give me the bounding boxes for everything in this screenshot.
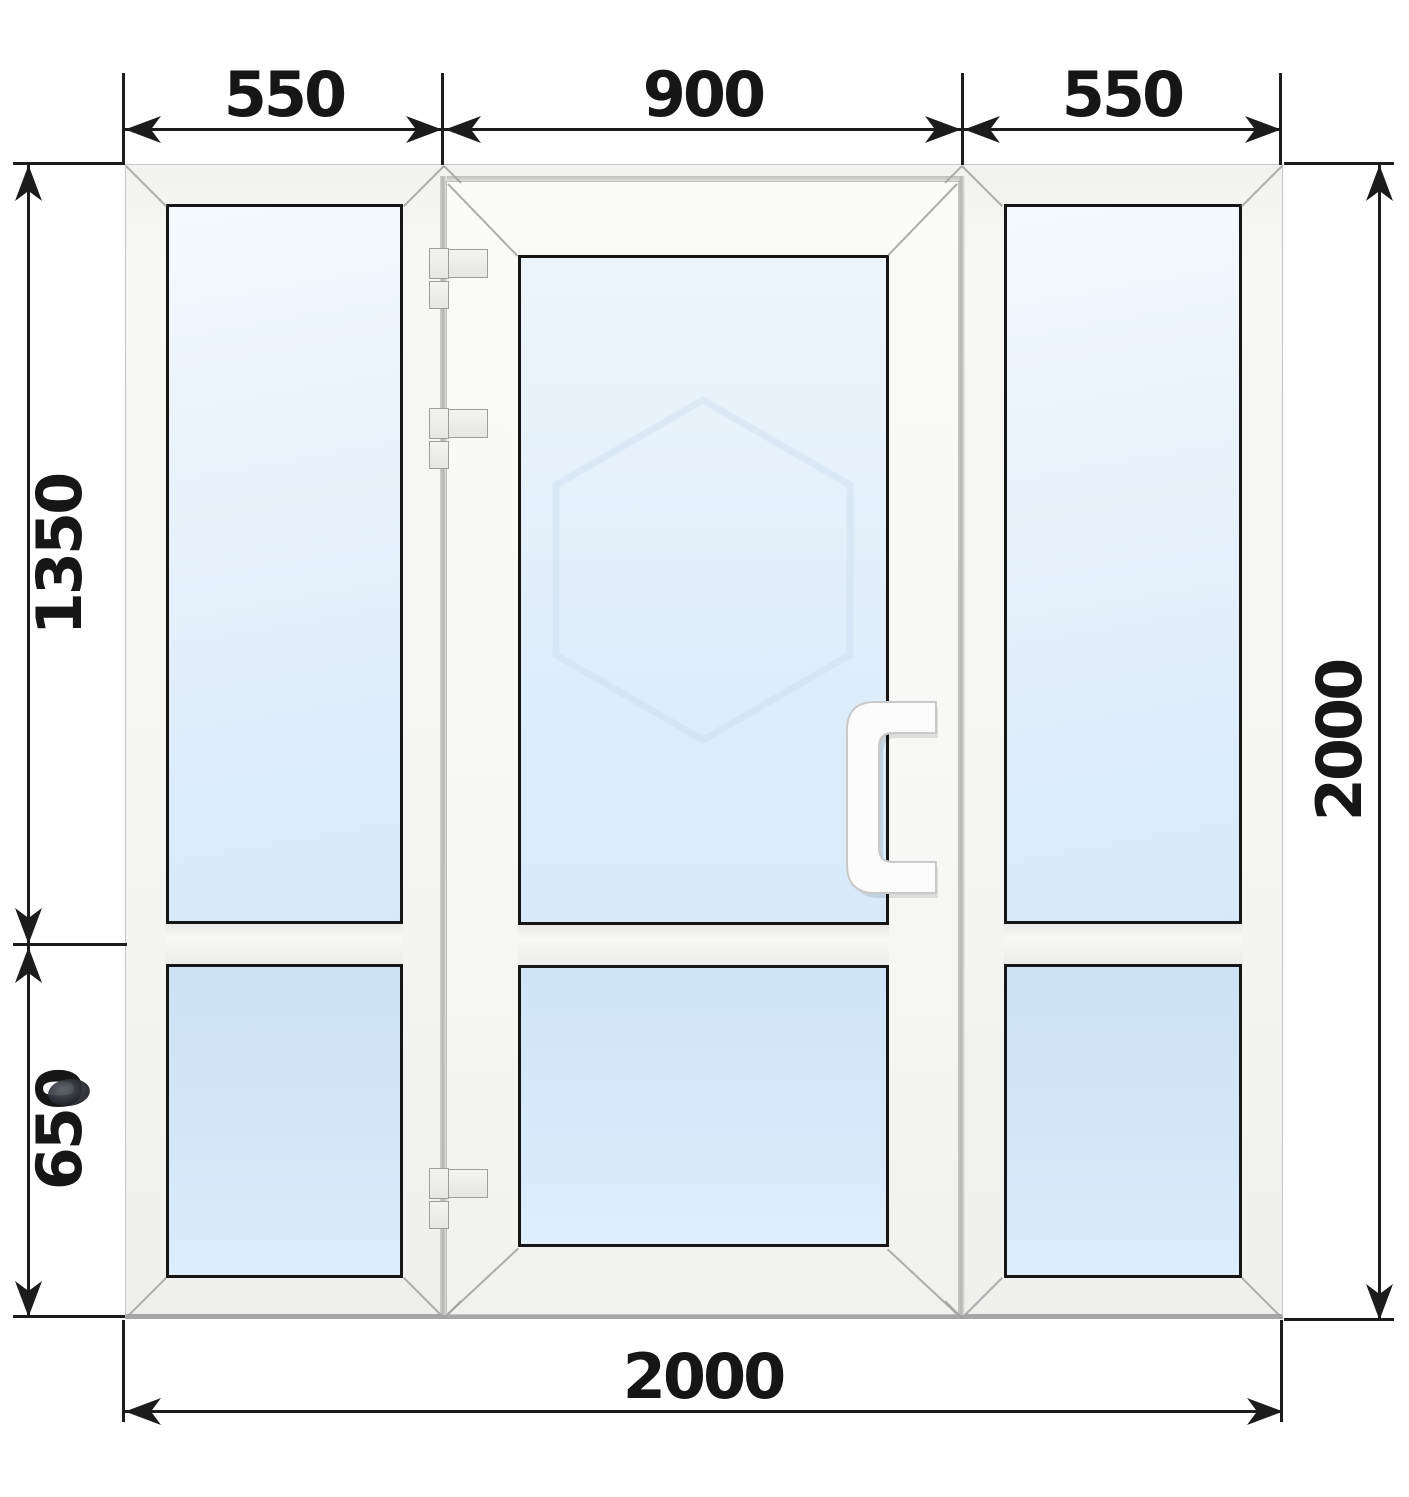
dimension-label-bottom-total: 2000 xyxy=(603,1345,803,1409)
door-gap-right xyxy=(958,176,965,1315)
arrowhead-up-icon xyxy=(15,165,42,201)
hinge-middle-icon xyxy=(448,409,488,438)
arrowhead-left-icon xyxy=(125,1398,161,1425)
dimension-label-top-center: 900 xyxy=(603,63,803,127)
hinge-middle-icon xyxy=(429,408,449,439)
door-transom-bar xyxy=(518,925,889,965)
dimension-label-top-left: 550 xyxy=(184,63,384,127)
hinge-top-icon xyxy=(448,249,488,278)
arrowhead-left-icon xyxy=(445,116,481,143)
dimension-line-right xyxy=(1378,164,1381,1320)
dimension-label-right-total: 2000 xyxy=(1308,641,1372,841)
arrowhead-down-icon xyxy=(15,908,42,944)
hinge-top-icon xyxy=(429,281,449,309)
arrowhead-up-icon xyxy=(1366,165,1393,201)
arrowhead-up-icon xyxy=(15,947,42,983)
door-lower-glass xyxy=(518,965,889,1247)
hinge-bottom-icon xyxy=(448,1169,488,1198)
left-sidelight-upper-glass xyxy=(166,204,403,924)
arrowhead-right-icon xyxy=(1245,116,1281,143)
glass-watermark-hexagon xyxy=(520,380,890,780)
left-sidelight-transom-bar xyxy=(166,924,403,964)
arrowhead-left-icon xyxy=(964,116,1000,143)
arrowhead-right-icon xyxy=(925,116,961,143)
door-handle-icon xyxy=(845,699,938,899)
arrowhead-right-icon xyxy=(1247,1398,1283,1425)
arrowhead-left-icon xyxy=(125,116,161,143)
right-sidelight-lower-glass xyxy=(1004,964,1242,1278)
arrowhead-down-icon xyxy=(1366,1284,1393,1320)
dimension-label-left-upper: 1350 xyxy=(28,455,92,655)
arrowhead-right-icon xyxy=(406,116,442,143)
hinge-bottom-icon xyxy=(429,1201,449,1229)
right-sidelight-upper-glass xyxy=(1004,204,1242,924)
hinge-middle-icon xyxy=(429,441,449,469)
door-dimension-drawing: 550 900 550 1350 650 2000 2000 xyxy=(0,0,1409,1497)
right-sidelight-transom-bar xyxy=(1004,924,1242,964)
dimension-label-left-lower: 650 xyxy=(28,1030,92,1230)
hinge-bottom-icon xyxy=(429,1168,449,1199)
dimension-label-top-right: 550 xyxy=(1022,63,1222,127)
left-sidelight-lower-glass xyxy=(166,964,403,1278)
hinge-top-icon xyxy=(429,248,449,279)
arrowhead-down-icon xyxy=(15,1281,42,1317)
